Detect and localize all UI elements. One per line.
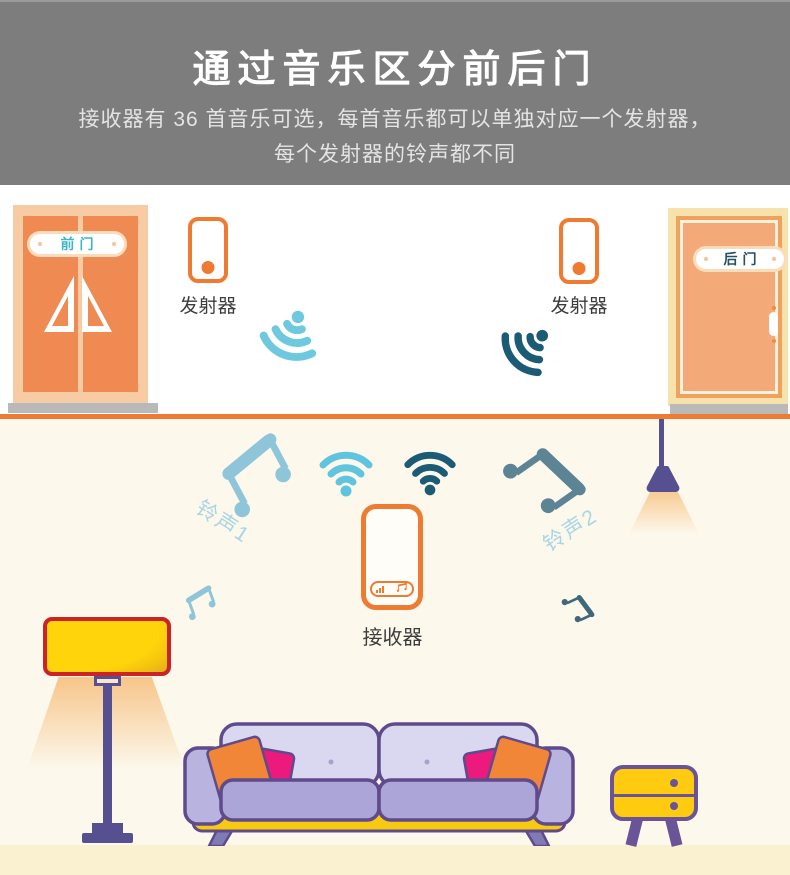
- sign-dot: [112, 242, 116, 246]
- subtitle-line-2: 每个发射器的铃声都不同: [0, 138, 790, 168]
- back-door-sign-label: 后门: [719, 249, 762, 269]
- receiver: [361, 504, 423, 610]
- door-handle-dot: [772, 339, 776, 343]
- signal-bar: [376, 590, 378, 593]
- wall-divider-line: [0, 414, 790, 419]
- floor-strip: [0, 845, 790, 875]
- header-banner: 通过音乐区分前后门 接收器有 36 首音乐可选，每首音乐都可以单独对应一个发射器…: [0, 0, 790, 185]
- transmitter-right-label: 发射器: [544, 291, 614, 318]
- back-door-threshold: [670, 404, 788, 414]
- wifi-signal-icon-dark: [399, 449, 461, 496]
- front-door-threshold: [8, 403, 158, 413]
- side-table-drawer-divider: [614, 794, 694, 797]
- transmitter-left-label: 发射器: [173, 291, 243, 318]
- page-title: 通过音乐区分前后门: [0, 38, 790, 93]
- music-note-icon-tiny: [396, 583, 408, 593]
- front-door-sign-label: 前门: [56, 234, 99, 254]
- floor-lamp-pole: [103, 686, 112, 825]
- sign-dot: [772, 257, 776, 261]
- signal-bar: [379, 588, 381, 593]
- side-table: [610, 765, 698, 821]
- transmitter-left: [188, 217, 228, 283]
- sign-dot: [38, 242, 42, 246]
- door-window-triangles-icon: [43, 274, 113, 334]
- door-handle-dot: [772, 306, 776, 310]
- hanging-lamp-shade: [645, 465, 681, 493]
- transmitter-button: [202, 261, 215, 274]
- back-door: 后门: [668, 208, 788, 406]
- wifi-signal-icon-light: [314, 449, 378, 497]
- drawer-knob: [670, 779, 678, 787]
- front-door-sign: 前门: [30, 234, 124, 254]
- transmitter-right: [559, 218, 599, 284]
- infographic-page: 通过音乐区分前后门 接收器有 36 首音乐可选，每首音乐都可以单独对应一个发射器…: [0, 0, 790, 875]
- door-handle: [769, 312, 778, 336]
- signal-bar: [382, 586, 384, 593]
- sofa: [183, 714, 575, 846]
- subtitle-line-1: 接收器有 36 首音乐可选，每首音乐都可以单独对应一个发射器，: [0, 103, 790, 133]
- floor-lamp-shade: [43, 617, 171, 676]
- transmitter-button: [573, 262, 586, 275]
- back-door-sign: 后门: [696, 249, 784, 269]
- back-door-leaf: 后门: [676, 216, 782, 398]
- floor-lamp-bracket: [94, 676, 121, 686]
- hanging-lamp-cord: [659, 419, 664, 467]
- receiver-label: 接收器: [355, 621, 430, 650]
- receiver-screen: [370, 581, 414, 597]
- drawer-knob: [670, 802, 678, 810]
- front-door: 前门: [13, 205, 148, 403]
- floor-lamp-base-foot: [82, 833, 133, 843]
- sign-dot: [704, 257, 708, 261]
